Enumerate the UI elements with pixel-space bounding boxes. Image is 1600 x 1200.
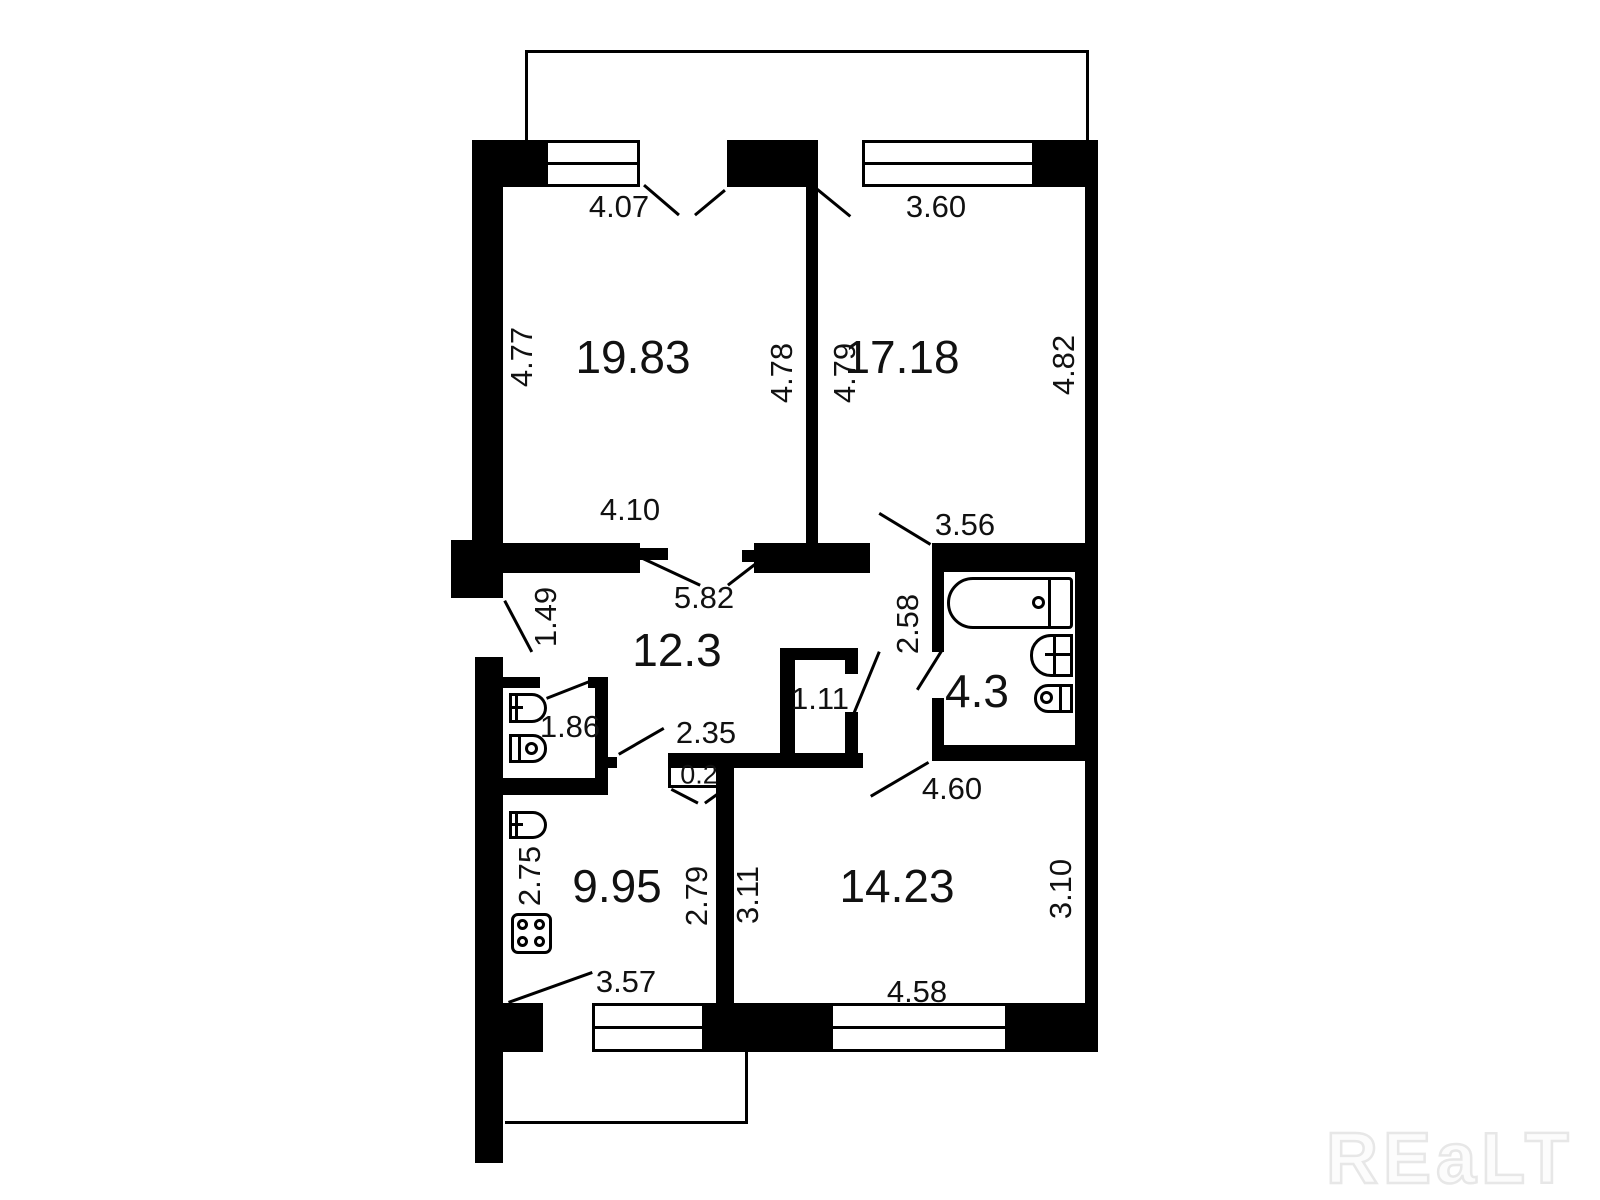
- kitchen-door-swing: [618, 727, 665, 756]
- floor-plan: 19.83 17.18 12.3 4.3 1.86 1.11 9.95 14.2…: [0, 0, 1600, 1200]
- area-hallway: 12.3: [632, 623, 722, 677]
- wall-hall-top-middle: [754, 543, 870, 573]
- area-second-room: 14.23: [839, 859, 954, 913]
- bathtub-icon: [947, 577, 1073, 629]
- dim-bathroom-depth: 2.58: [890, 594, 926, 654]
- dim-kitchen-bottom: 3.57: [596, 964, 656, 1000]
- dim-second-room-bottom: 4.58: [887, 974, 947, 1010]
- wall-wc-bottom: [503, 778, 608, 795]
- bathroom-toilet-drain: [1040, 691, 1053, 704]
- stove-burner: [534, 936, 545, 947]
- wall-kitchen-door-stub: [607, 757, 617, 768]
- dim-living-right: 4.78: [764, 343, 800, 403]
- stove-icon: [511, 913, 552, 954]
- window-living-room: [545, 140, 640, 187]
- dim-bedroom-left: 4.79: [827, 343, 863, 403]
- wall-bottom-left-step: [503, 1003, 543, 1052]
- bedroom-balcony-leader: [816, 188, 851, 218]
- bathtub-drain: [1032, 596, 1045, 609]
- dim-living-left: 4.77: [504, 327, 540, 387]
- balcony-door-leader-right: [694, 189, 726, 216]
- dim-bedroom-bottom: 3.56: [935, 507, 995, 543]
- wall-top-pier: [727, 140, 818, 187]
- dim-second-room-top: 4.60: [922, 771, 982, 807]
- area-kitchen: 9.95: [572, 859, 662, 913]
- dim-kitchen-right: 2.79: [679, 866, 715, 926]
- stove-burner: [534, 919, 545, 930]
- wall-wc-top: [503, 677, 540, 688]
- dim-living-bottom: 4.10: [600, 492, 660, 528]
- dim-bedroom-right: 4.82: [1046, 335, 1082, 395]
- wall-top-right-corner: [1035, 140, 1086, 187]
- dim-hallway-width: 2.35: [676, 715, 736, 751]
- area-bathroom: 4.3: [945, 664, 1009, 718]
- bathroom-sink-line-h: [1045, 653, 1073, 656]
- wall-left-upper: [472, 140, 503, 597]
- dim-second-room-left: 3.11: [730, 866, 766, 924]
- wall-closet-right-lower: [845, 712, 858, 755]
- area-wc: 1.86: [540, 709, 600, 745]
- kitchen-balcony-leader: [508, 971, 593, 1004]
- area-closet: 1.11: [791, 681, 849, 717]
- dim-bedroom-window: 3.60: [906, 189, 966, 225]
- wall-bathroom-top: [932, 543, 1085, 572]
- wall-stub-mid: [742, 550, 754, 562]
- kitchen-sink-bowl-icon: [523, 811, 547, 839]
- wall-entry-pilaster: [451, 540, 503, 598]
- dim-hallway-top: 5.82: [674, 580, 734, 616]
- kitchen-sink-cross-v: [515, 811, 518, 839]
- stove-burner: [517, 936, 528, 947]
- wc-toilet-drain: [525, 742, 538, 755]
- bathroom-door-swing: [916, 649, 943, 690]
- wall-top-left-corner: [472, 140, 545, 187]
- wall-right-bathroom: [1075, 543, 1097, 761]
- area-living-room: 19.83: [575, 330, 690, 384]
- wc-toilet-tank-line: [518, 734, 521, 763]
- dim-second-room-right: 3.10: [1043, 859, 1079, 919]
- dim-entry-width: 1.49: [528, 587, 564, 647]
- dim-wall-notch: 0.2: [680, 760, 718, 791]
- second-room-door-leader: [870, 761, 929, 797]
- dim-living-window: 4.07: [589, 189, 649, 225]
- stove-burner: [517, 919, 528, 930]
- wall-bathroom-bottom: [932, 745, 1085, 761]
- balcony-outline-top: [525, 50, 1089, 140]
- wall-room-divider: [806, 187, 818, 543]
- window-bedroom: [862, 140, 1035, 187]
- wc-sink-cross-v: [515, 693, 518, 723]
- dim-kitchen-left: 2.75: [512, 846, 548, 906]
- wall-closet-right-stub: [845, 648, 858, 674]
- realt-watermark: REaLT: [1326, 1118, 1574, 1200]
- porch-outline-bottom: [505, 1052, 748, 1124]
- window-kitchen: [592, 1003, 705, 1052]
- bathtub-panel-line: [1048, 580, 1051, 626]
- wall-bottom-right-corner: [1008, 1003, 1097, 1052]
- wc-door-swing: [546, 679, 593, 700]
- window-second-room: [830, 1003, 1008, 1052]
- bedroom-door-leader: [878, 512, 931, 546]
- wall-bottom-middle: [705, 1003, 830, 1052]
- wall-left-lower: [475, 657, 503, 1163]
- wall-hall-top-left: [503, 543, 640, 573]
- wall-bathroom-left-upper: [932, 572, 944, 652]
- bathroom-toilet-tank-line: [1059, 684, 1062, 713]
